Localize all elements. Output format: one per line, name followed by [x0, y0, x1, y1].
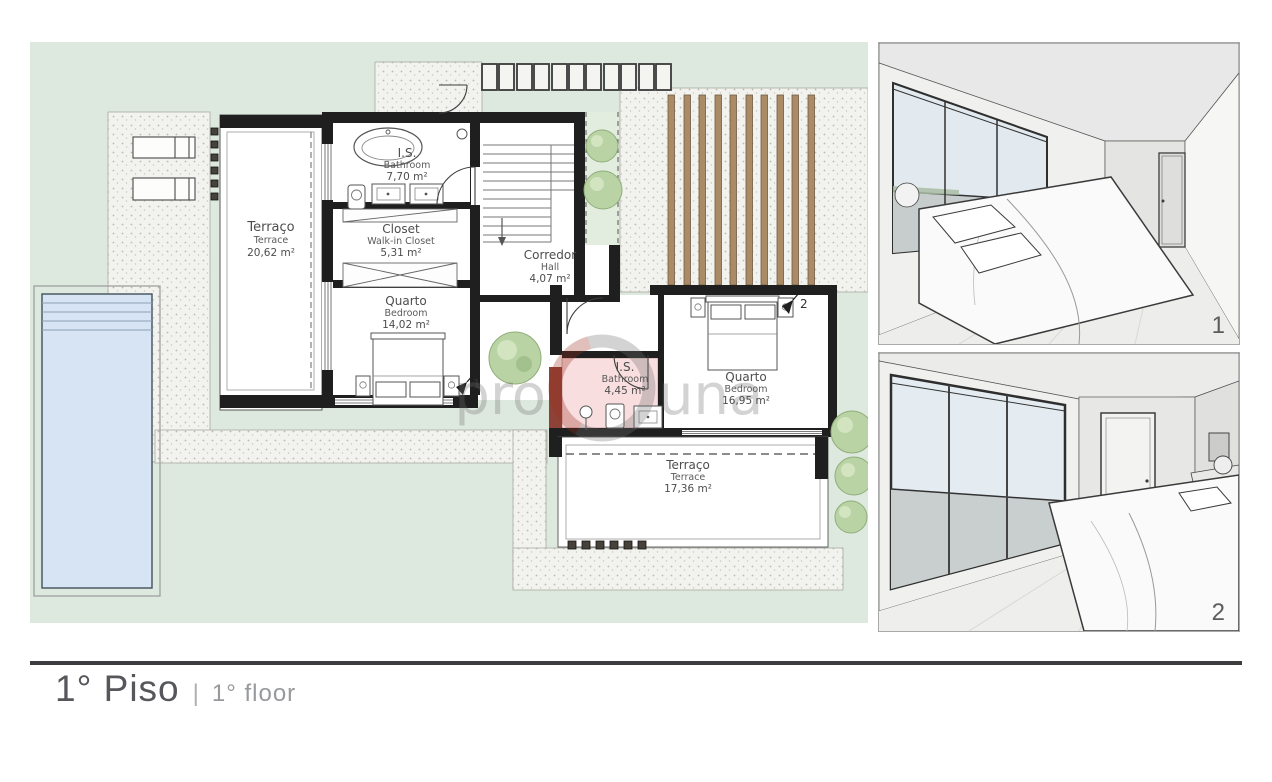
render1-number: 1 — [1212, 312, 1225, 340]
title-portuguese: 1° Piso — [55, 668, 180, 710]
roof-slats-top-row — [482, 64, 671, 90]
svg-text:pro: pro — [454, 363, 546, 428]
svg-text:una: una — [658, 363, 763, 428]
hall-floor — [480, 245, 609, 295]
floor-plan: 1 2 — [30, 42, 868, 623]
page-title: 1° Piso | 1° floor — [55, 668, 296, 710]
render1-door — [1159, 153, 1185, 247]
terrace1-room — [211, 115, 322, 410]
floor-plan-drawing: 1 2 — [30, 42, 868, 623]
svg-text:2: 2 — [800, 297, 808, 311]
title-english: 1° floor — [212, 680, 296, 708]
bathtub-icon — [354, 128, 422, 166]
render1-chair — [895, 183, 919, 207]
render-view-1: 1 — [878, 42, 1240, 345]
render2-number: 2 — [1212, 599, 1225, 627]
terrace2-room — [549, 437, 828, 549]
title-separator: | — [193, 680, 199, 708]
render2-drawing — [879, 353, 1239, 631]
render1-drawing — [879, 43, 1239, 344]
footer-divider — [30, 661, 1242, 665]
toilet-icon — [348, 185, 365, 209]
render-view-2: 2 — [878, 352, 1240, 632]
swimming-pool — [34, 286, 160, 596]
